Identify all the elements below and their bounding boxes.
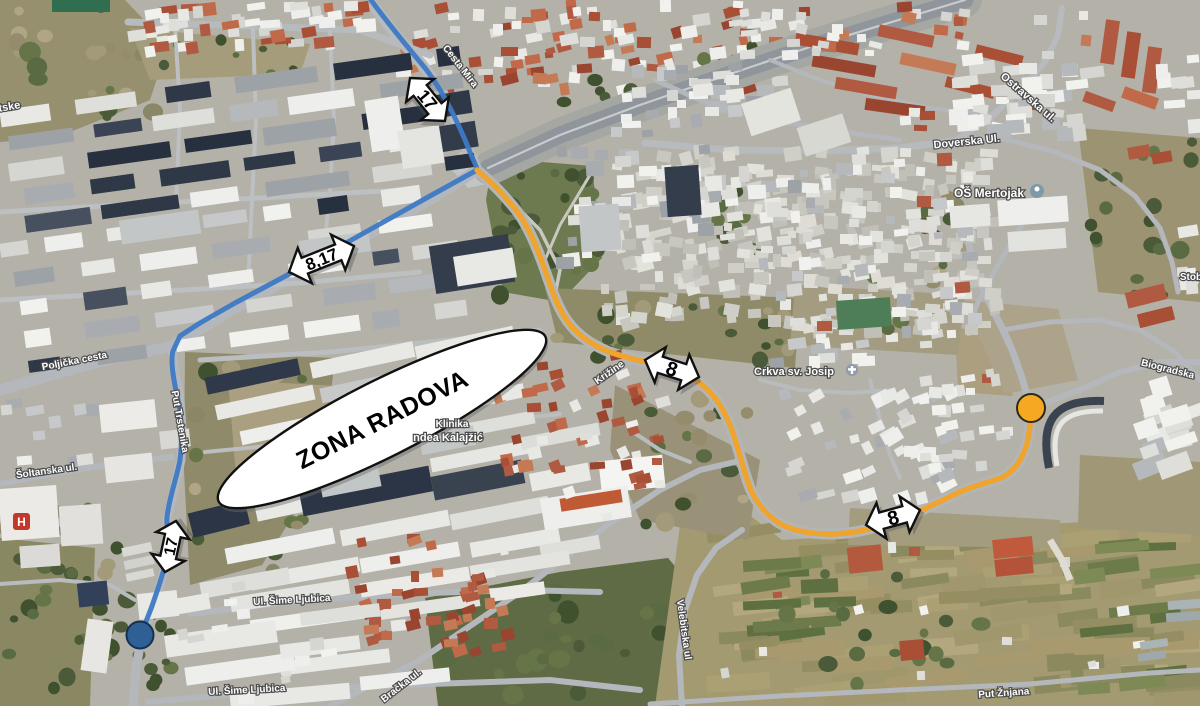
svg-text:Stob: Stob <box>1180 272 1200 283</box>
svg-text:H: H <box>17 515 26 529</box>
svg-text:OŠ Mertojak: OŠ Mertojak <box>954 185 1024 200</box>
svg-text:ndea Kalajžić: ndea Kalajžić <box>413 432 483 444</box>
svg-text:Crkva sv. Josip: Crkva sv. Josip <box>754 366 834 378</box>
svg-text:Klinika: Klinika <box>436 419 469 430</box>
